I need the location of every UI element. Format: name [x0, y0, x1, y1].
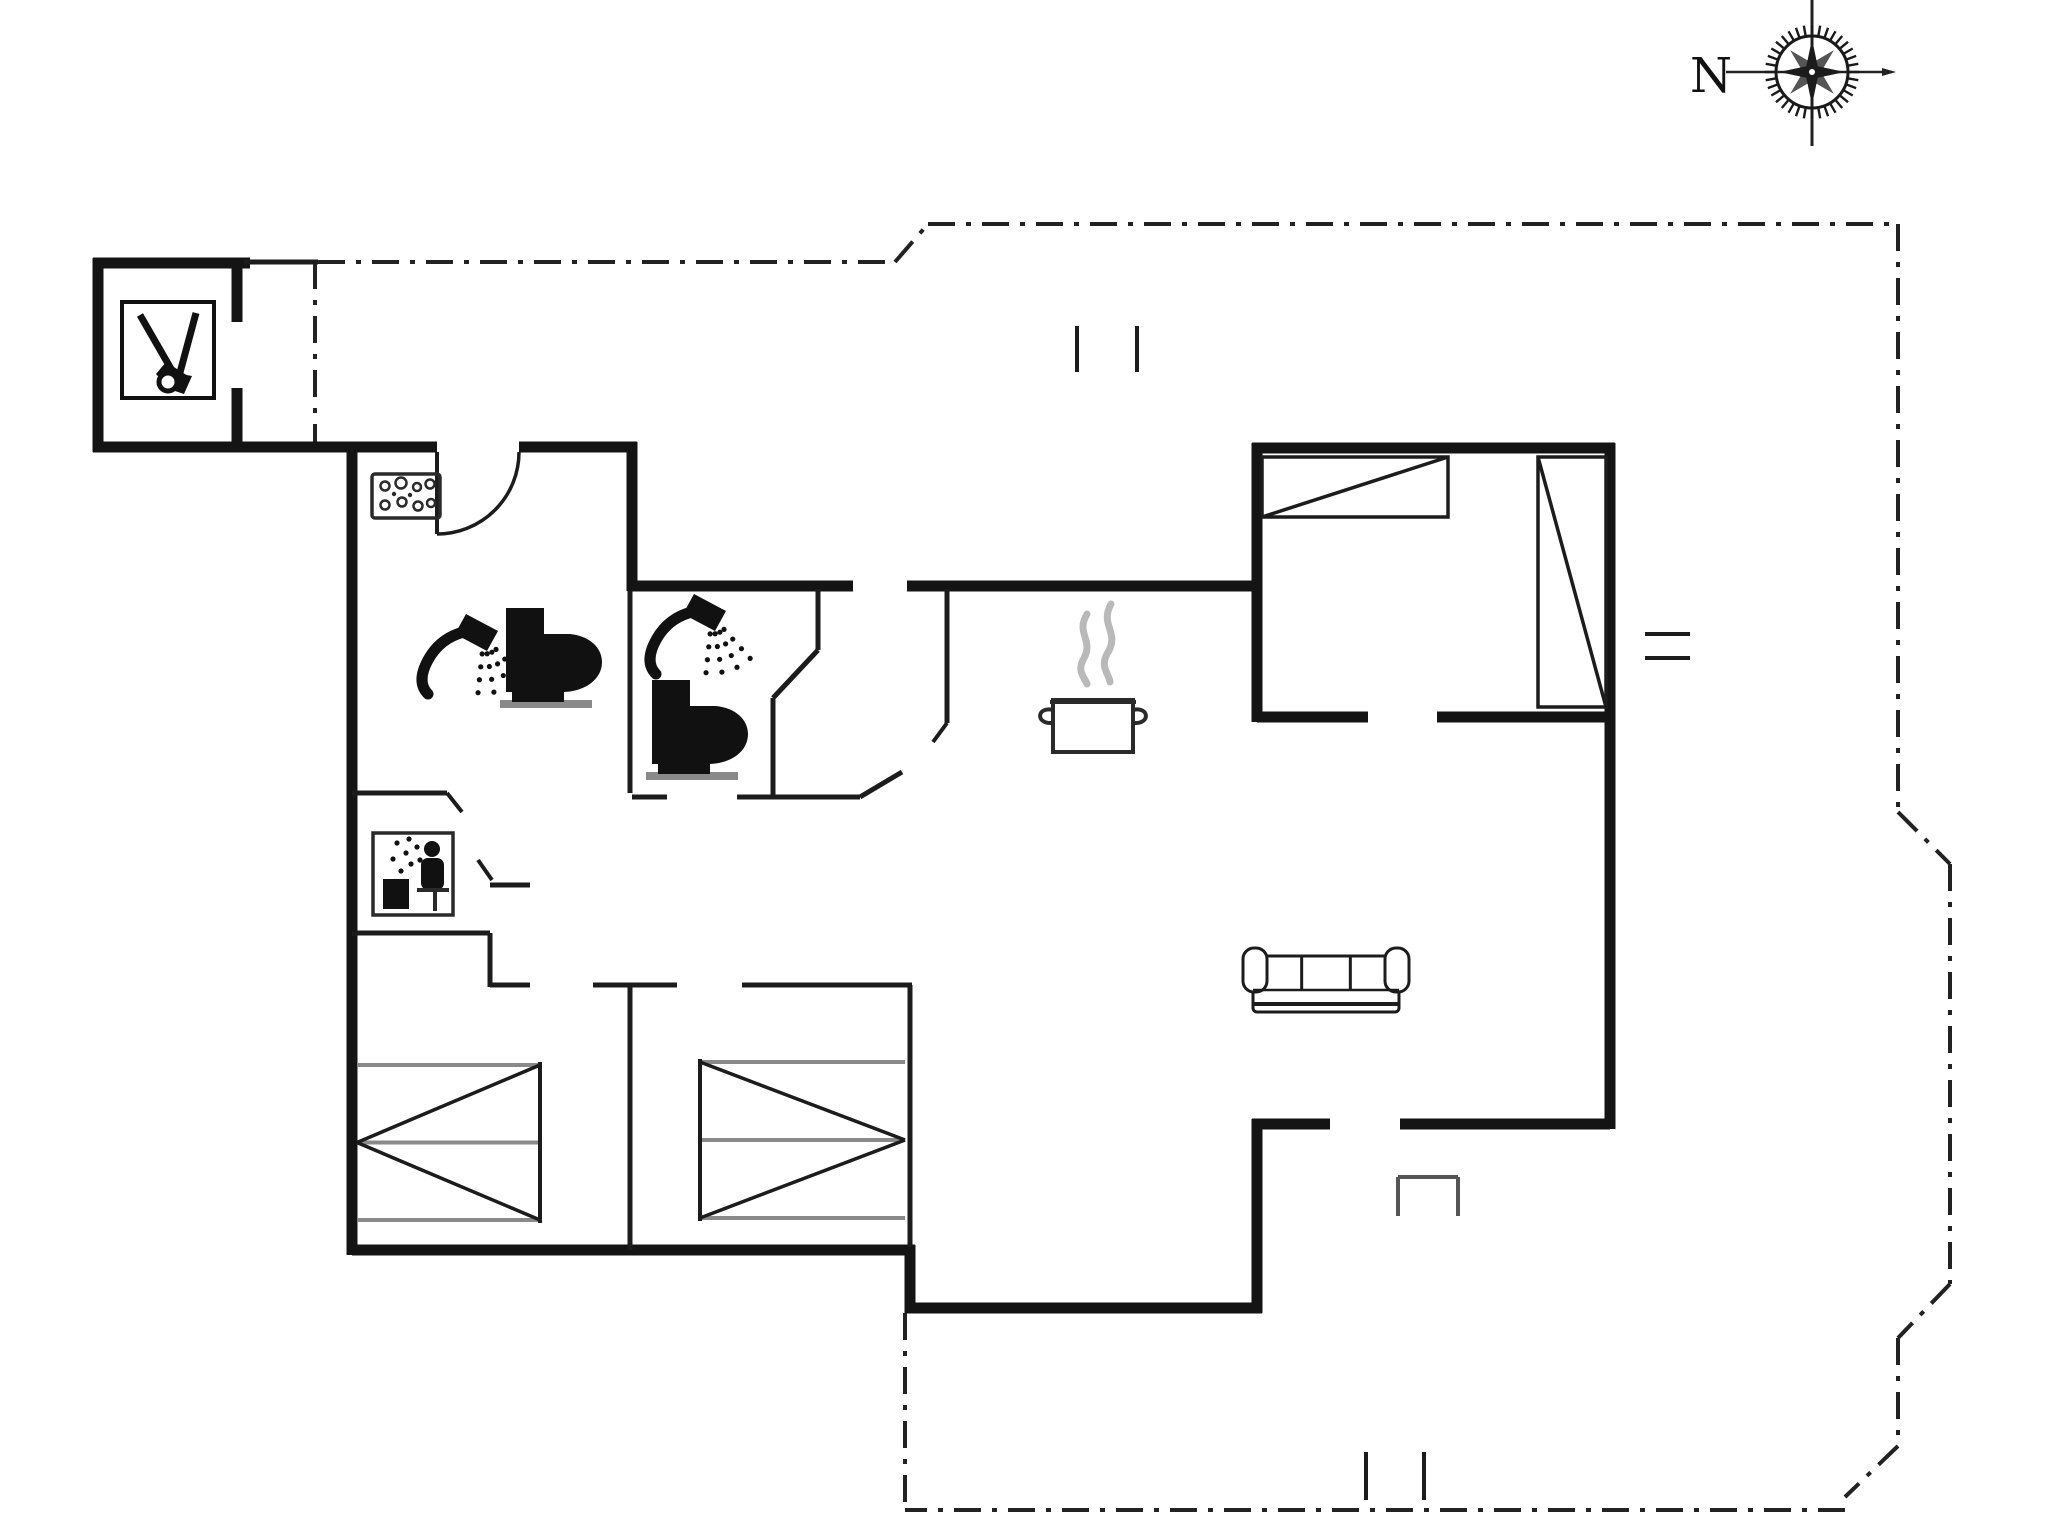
steam-dot	[390, 856, 395, 861]
exterior-walls	[93, 258, 1615, 1313]
steam-dot	[394, 840, 399, 845]
compass-tooth	[1847, 85, 1856, 88]
compass-tooth	[1776, 96, 1784, 102]
partition-wall	[860, 772, 902, 797]
person-body	[421, 858, 444, 890]
spray-dot	[485, 651, 490, 656]
tool-handle	[178, 313, 196, 380]
compass-tooth	[1766, 78, 1776, 80]
compass-tooth	[1768, 56, 1777, 59]
wardrobe	[1538, 457, 1606, 707]
compass-north-label: N	[1690, 48, 1732, 104]
spray-dot	[489, 677, 494, 682]
bed-diagonal	[357, 1065, 540, 1143]
spray-dot	[478, 664, 483, 669]
sauna-icon	[373, 833, 453, 915]
spray-dot	[703, 670, 708, 675]
compass-tooth	[1789, 31, 1794, 40]
compass-tooth	[1766, 64, 1776, 66]
washing-machine-icon	[372, 474, 440, 518]
shower-head	[683, 594, 726, 631]
steam-dot	[403, 850, 408, 855]
machine-dot	[408, 493, 412, 497]
toilet-icon	[646, 680, 748, 780]
spray-dot	[487, 664, 492, 669]
steam	[1104, 604, 1111, 682]
compass-tooth	[1836, 100, 1842, 108]
cooking-pot	[1040, 604, 1146, 752]
compass-tooth	[1840, 42, 1848, 48]
compass-tooth	[1771, 91, 1780, 96]
machine-dial	[396, 478, 407, 489]
door-leaf	[478, 860, 492, 880]
machine-dial	[427, 499, 435, 507]
compass-tooth	[1789, 104, 1794, 113]
partition-wall	[773, 650, 818, 698]
floor-plan: N	[0, 0, 2048, 1536]
steam-dot	[406, 836, 411, 841]
compass-tooth	[1796, 107, 1799, 116]
compass-tooth	[1796, 28, 1799, 37]
terrace-markers	[1077, 326, 1690, 1500]
spray-dot	[713, 631, 718, 636]
steam-dot	[414, 844, 419, 849]
terrace-outline	[315, 224, 1950, 1510]
compass-tooth	[1847, 56, 1856, 59]
spray-dot	[719, 670, 724, 675]
spray-dot	[495, 661, 500, 666]
shower-icon	[650, 594, 753, 675]
compass-hub	[1809, 69, 1815, 75]
compass-tooth	[1836, 36, 1842, 44]
compass-tooth	[1831, 104, 1836, 113]
spray-dot	[717, 657, 722, 662]
compass-tooth	[1844, 91, 1853, 96]
compass-tooth	[1804, 108, 1806, 118]
bed-diagonal	[357, 1143, 540, 1221]
furniture	[357, 457, 1606, 1223]
terrace-boundary-line	[895, 224, 928, 262]
spray-dot	[715, 644, 720, 649]
compass-needle-tip	[1882, 68, 1896, 76]
spray-dot	[706, 644, 711, 649]
spray-dot	[489, 650, 494, 655]
machine-dial	[381, 501, 390, 510]
machine-dial	[414, 502, 423, 511]
spray-dot	[734, 665, 739, 670]
steam-dot	[408, 861, 413, 866]
fixture-icons	[122, 302, 753, 915]
terrace-boundary-line	[1845, 1446, 1898, 1497]
compass-tooth	[1776, 42, 1784, 48]
spray-dot	[723, 641, 728, 646]
compass-tooth	[1825, 28, 1828, 37]
compass-tooth	[1768, 85, 1777, 88]
spray-dot	[477, 677, 482, 682]
machine-dot	[392, 492, 396, 496]
wardrobe	[1262, 457, 1448, 517]
terrace-boundary-line	[1898, 812, 1950, 864]
machine-dial	[413, 483, 421, 491]
steam	[1081, 614, 1087, 684]
wardrobe-diagonal	[1262, 457, 1448, 517]
toilet-foot	[512, 688, 564, 702]
spray-dot	[730, 636, 735, 641]
sauna-bucket	[383, 879, 409, 909]
machine-dial	[426, 480, 435, 489]
spray-dot	[491, 690, 496, 695]
compass-tooth	[1840, 96, 1848, 102]
person-head	[424, 841, 440, 857]
toilet-icon	[500, 608, 602, 708]
machine-dial	[381, 482, 390, 491]
spray-dot	[501, 673, 506, 678]
spray-dot	[729, 653, 734, 658]
sofa	[1243, 948, 1409, 1012]
shower-head	[455, 614, 498, 651]
compass-tooth	[1831, 31, 1836, 40]
machine-dial	[398, 498, 407, 507]
bed	[700, 1059, 905, 1221]
compass-tooth	[1804, 26, 1806, 36]
spray-dot	[475, 690, 480, 695]
compass-rose: N	[1690, 0, 1896, 146]
compass-tooth	[1818, 108, 1820, 118]
spray-dot	[708, 631, 713, 636]
spray-dot	[717, 630, 722, 635]
pot-body	[1053, 700, 1133, 752]
bed	[357, 1062, 540, 1223]
toilet-silhouette	[652, 680, 748, 764]
sofa-arm-right	[1385, 948, 1409, 992]
terrace-boundary-line	[1898, 1284, 1950, 1338]
compass-tooth	[1818, 26, 1820, 36]
compass-tooth	[1844, 49, 1853, 54]
steam-dot	[398, 868, 403, 873]
compass-tooth	[1848, 78, 1858, 80]
compass-tooth	[1782, 36, 1788, 44]
entrance-door-arc	[437, 452, 519, 534]
toilet-foot	[658, 760, 710, 774]
spray-dot	[705, 657, 710, 662]
garden-tools-icon	[122, 302, 214, 398]
compass-tooth	[1825, 107, 1828, 116]
bed-diagonal	[700, 1062, 905, 1140]
compass-tooth	[1848, 64, 1858, 66]
door-leaf	[447, 793, 462, 812]
compass-tooth	[1782, 100, 1788, 108]
floor-plan-page: N	[0, 0, 2048, 1536]
door-leaf	[933, 723, 947, 742]
spray-dot	[748, 656, 753, 661]
toilet-silhouette	[506, 608, 602, 692]
sofa-arm-left	[1243, 948, 1267, 992]
spray-dot	[480, 651, 485, 656]
spray-dot	[739, 646, 744, 651]
compass-tooth	[1771, 49, 1780, 54]
bed-diagonal	[700, 1140, 905, 1218]
tool-ring	[159, 373, 177, 391]
wardrobe-diagonal	[1538, 457, 1606, 707]
